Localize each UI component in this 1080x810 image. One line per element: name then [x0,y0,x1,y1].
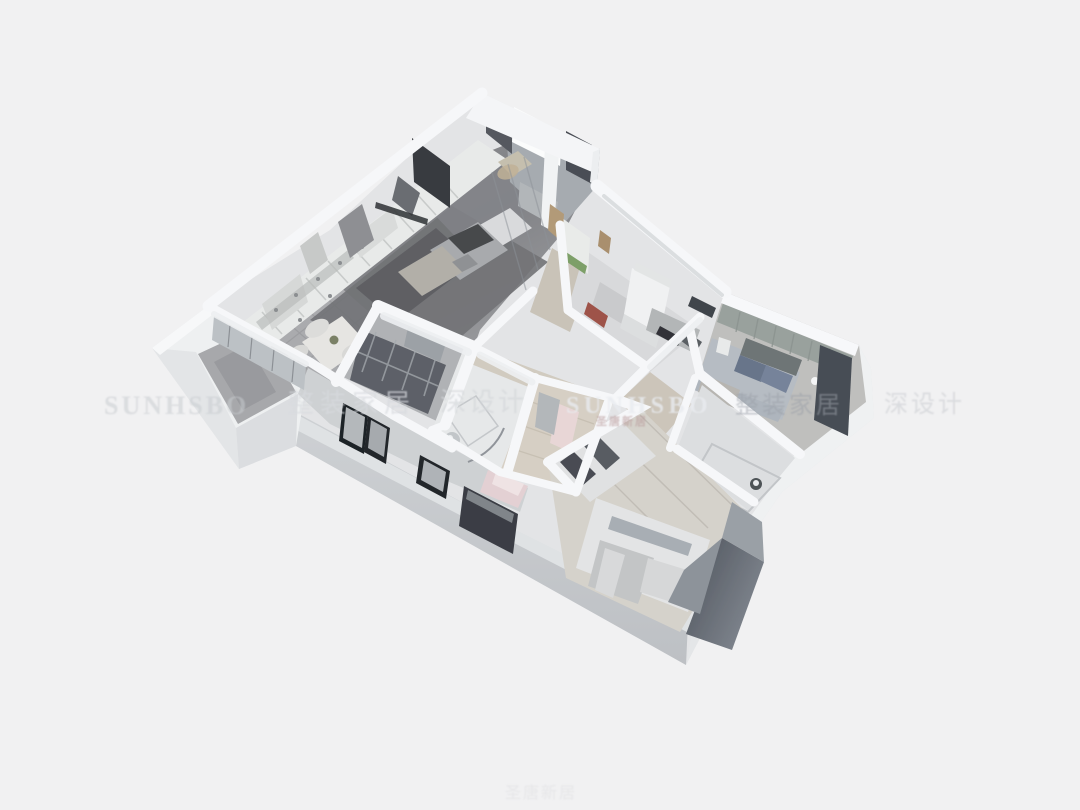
svg-text:圣唐新居: 圣唐新居 [595,414,648,428]
svg-text:深设计: 深设计 [884,391,965,418]
svg-text:整装家居: 整装家居 [288,388,416,418]
svg-text:圣唐新居: 圣唐新居 [505,784,577,802]
svg-text:SUNHSBO: SUNHSBO [104,391,249,420]
svg-text:整装家居: 整装家居 [735,392,843,419]
svg-text:深设计: 深设计 [440,387,527,417]
